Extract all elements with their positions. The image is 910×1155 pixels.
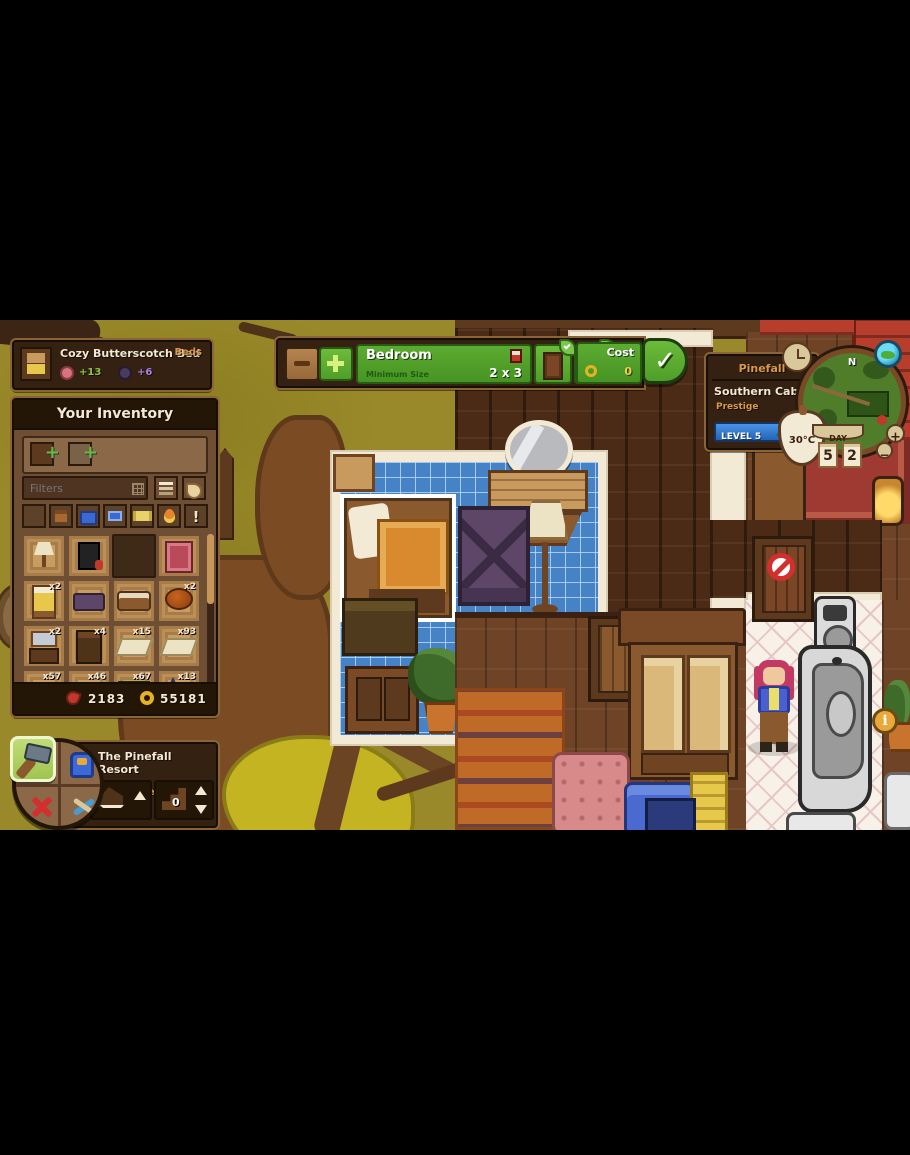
minus-icon: −	[879, 448, 889, 462]
filters-row	[22, 476, 204, 500]
door-req-icon	[543, 352, 563, 380]
up-arrow-icon	[134, 791, 146, 800]
item-lamp-pole	[42, 555, 46, 567]
divider	[712, 379, 812, 381]
inventory-slot[interactable]	[112, 579, 156, 623]
item-tooltip-panel: Cozy Butterscotch Bed Beds +13 +6	[12, 340, 212, 390]
shirt-icon	[133, 511, 152, 521]
world-map-icon[interactable]	[874, 340, 902, 368]
item-floor-mat	[160, 638, 199, 656]
storage-chest[interactable]	[342, 598, 418, 656]
down-arrow-icon	[195, 805, 207, 814]
screenshot-stage: i Cozy Butterscotch Bed Beds +13 +6 Your…	[0, 0, 910, 1155]
inventory-panel: Your Inventory + +	[12, 398, 218, 716]
currency-footer: 2183 55181	[14, 682, 216, 714]
day-card-tens: 5	[818, 442, 838, 468]
pouch-icon	[186, 483, 202, 499]
right-fixture	[884, 772, 910, 830]
confirm-room-button[interactable]: ✓	[642, 338, 688, 384]
coins-icon	[140, 691, 154, 705]
npc-shirt	[769, 688, 779, 710]
inventory-title: Your Inventory	[14, 400, 216, 428]
filter-crafting[interactable]	[76, 504, 100, 528]
tooltip-bed-icon	[20, 347, 52, 381]
inventory-slot[interactable]	[67, 534, 111, 578]
item-floor-mat	[115, 638, 154, 656]
inventory-slot[interactable]: x93	[157, 624, 201, 668]
window-shelf[interactable]	[333, 454, 375, 492]
bed-mini-icon	[510, 349, 522, 363]
floor-down-button[interactable]	[195, 805, 207, 814]
npc-pants	[760, 712, 788, 744]
filter-fire[interactable]	[157, 504, 181, 528]
grid-icon	[132, 483, 144, 495]
floor-up-button[interactable]	[195, 786, 207, 795]
wooden-post	[216, 448, 234, 540]
exclamation-icon: !	[193, 508, 200, 526]
filter-category-row: !	[22, 504, 204, 530]
wardrobe-crown	[618, 608, 746, 646]
stack-bar	[159, 492, 173, 495]
cost-value: 0	[624, 365, 632, 378]
stack-bar	[159, 482, 173, 485]
pink-mattress[interactable]	[552, 752, 630, 830]
room-size-increase-button[interactable]	[319, 347, 353, 381]
compass-clock-icon[interactable]	[782, 342, 812, 372]
urinal-dot	[832, 657, 842, 665]
item-sofa	[117, 591, 151, 611]
repair-mode-button[interactable]	[70, 794, 96, 820]
minus-icon	[294, 361, 310, 366]
scraps-value: 2183	[88, 692, 125, 706]
inventory-slot[interactable]	[67, 579, 111, 623]
filter-special[interactable]: !	[184, 504, 208, 528]
item-vanity-base	[29, 648, 59, 664]
no-entry-sign	[767, 553, 795, 581]
requirement-door-button[interactable]	[534, 344, 572, 384]
sink[interactable]	[786, 812, 856, 830]
cabinet-door	[356, 677, 382, 721]
globe-land	[881, 351, 895, 359]
npc-guest[interactable]	[752, 660, 796, 756]
blueprint-icon	[108, 511, 122, 521]
purple-wardrobe[interactable]	[458, 506, 530, 606]
stack-bar	[159, 487, 173, 490]
potted-plant[interactable]	[424, 702, 458, 734]
npc-face	[763, 667, 785, 685]
bed-icon-pillow	[27, 353, 45, 363]
plus-icon	[327, 361, 344, 366]
room-size-decrease-button[interactable]	[285, 347, 319, 381]
npc-shoe	[776, 742, 788, 752]
room-info-panel: Bedroom Minimum Size 2 x 3	[356, 344, 532, 384]
item-lamp	[34, 542, 54, 555]
plus-icon: +	[45, 442, 60, 463]
backpack-pocket	[77, 758, 87, 765]
bed-blanket	[377, 519, 449, 595]
min-size-label: Minimum Size	[366, 370, 429, 379]
inventory-add-row: + +	[22, 436, 208, 474]
large-wardrobe[interactable]	[628, 642, 738, 780]
inventory-slot[interactable]: x2	[22, 579, 66, 623]
filters-input[interactable]	[22, 476, 148, 500]
item-bench	[73, 593, 105, 611]
delete-mode-button[interactable]	[30, 796, 52, 818]
cost-label: Cost	[607, 346, 634, 359]
furniture-icon	[55, 510, 67, 522]
inventory-slot[interactable]: x2	[157, 579, 201, 623]
room-name: Bedroom	[366, 348, 432, 363]
inventory-header: Your Inventory	[14, 400, 216, 430]
lantern[interactable]	[872, 476, 904, 526]
resort-title: The Pinefall Resort	[98, 750, 216, 776]
dark-blue-bunk[interactable]	[645, 798, 696, 830]
npc-shoe	[760, 742, 772, 752]
inventory-slot[interactable]: x2	[22, 624, 66, 668]
scrollbar-thumb[interactable]	[207, 534, 214, 604]
coins-value: 55181	[160, 692, 207, 706]
filter-furniture[interactable]	[49, 504, 73, 528]
inventory-slot-empty[interactable]	[112, 534, 156, 578]
plus-icon: +	[83, 442, 98, 463]
bed-icon-blanket	[27, 364, 45, 374]
floor-selector-group: 0	[154, 780, 214, 820]
gauge-stem	[799, 405, 807, 415]
filter-clothing[interactable]	[130, 504, 154, 528]
day-card-ones: 2	[842, 442, 862, 468]
lamp-pole	[542, 542, 548, 608]
add-room-button[interactable]: +	[30, 442, 54, 466]
game-viewport: i Cozy Butterscotch Bed Beds +13 +6 Your…	[0, 320, 910, 830]
wardrobe-glass-door	[641, 655, 685, 753]
inventory-slot[interactable]: x15	[112, 624, 156, 668]
comfort-bonus: +13	[79, 367, 101, 378]
no-entry-door[interactable]	[752, 536, 814, 622]
decor-bonus: +6	[137, 367, 152, 378]
crafting-icon	[80, 511, 97, 525]
plus-icon: +	[890, 430, 901, 445]
filter-blueprints[interactable]	[103, 504, 127, 528]
red-roof-edge	[760, 320, 854, 335]
comfort-icon	[60, 366, 74, 380]
no-entry-bar	[772, 557, 793, 578]
inventory-slot[interactable]: x4	[67, 624, 111, 668]
day-digit: 2	[847, 448, 857, 464]
inventory-slot[interactable]	[22, 534, 66, 578]
stack-filter-button[interactable]	[154, 476, 178, 500]
item-lantern	[95, 560, 103, 570]
wheel-divider	[16, 784, 104, 787]
patterned-rug	[455, 688, 565, 830]
inventory-mode-button[interactable]	[70, 752, 94, 778]
scraps-icon	[64, 689, 82, 707]
pouch-filter-button[interactable]	[182, 476, 206, 500]
large-urinal[interactable]	[798, 645, 872, 813]
add-blueprint-button[interactable]: +	[68, 442, 92, 466]
info-icon[interactable]: i	[872, 708, 898, 734]
clock-hand	[797, 357, 805, 359]
tooltip-category: Beds	[174, 347, 202, 358]
minimap-zoom-out-button[interactable]: −	[876, 442, 893, 459]
day-digit: 5	[823, 448, 833, 464]
flame-icon	[164, 509, 175, 523]
floor-value: 0	[172, 796, 180, 809]
level-label: LEVEL 5	[721, 432, 761, 442]
check-icon: ✓	[654, 346, 676, 376]
roof-chevron	[100, 805, 124, 814]
cabinet-door	[384, 677, 410, 721]
minimap-marker	[877, 415, 887, 425]
prestige-level-bar: LEVEL 5	[714, 422, 786, 442]
item-rug	[165, 541, 193, 573]
inventory-slot[interactable]	[157, 534, 201, 578]
urinal-drain	[826, 691, 856, 737]
filter-all[interactable]	[22, 504, 46, 528]
cost-panel: Cost 0	[576, 342, 642, 384]
minimap-zoom-in-button[interactable]: +	[886, 424, 905, 443]
build-mode-button[interactable]	[10, 736, 56, 782]
up-arrow-icon	[195, 786, 207, 795]
day-banner: DAY	[812, 424, 864, 440]
decor-icon	[118, 366, 132, 380]
toilet-tank	[823, 605, 847, 621]
wardrobe-glass-door	[687, 655, 731, 753]
cost-coin-icon	[585, 365, 597, 377]
min-size-value: 2 x 3	[489, 366, 522, 380]
roof-up-button[interactable]	[134, 791, 146, 800]
